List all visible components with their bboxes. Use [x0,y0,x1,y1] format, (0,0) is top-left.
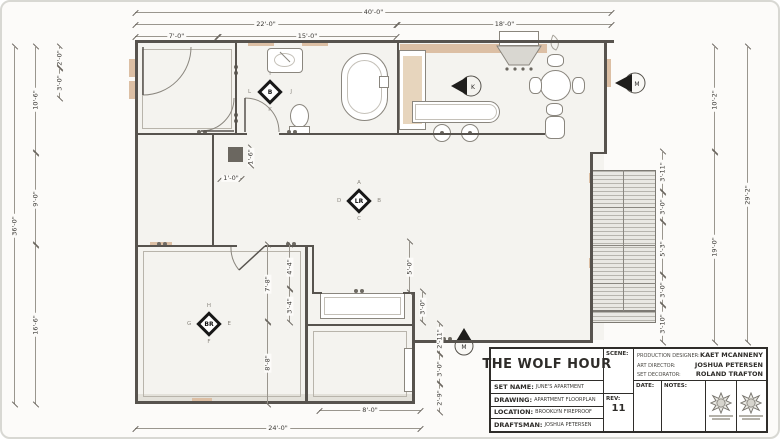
date-cell: DATE: [634,381,662,431]
dimension-label: 7'-8" [264,274,271,293]
dimension-label: 10'-2" [711,88,718,112]
wall-segment [212,133,214,247]
dimension-line: 40'-0" [135,12,612,13]
stamp-caption-line [739,415,763,417]
dimension-line: 3'-4" [289,289,290,322]
dimension-line: 8'-8" [267,322,268,404]
dimension-line: 3'-0" [662,275,663,305]
wall-segment [306,324,414,326]
dimension-label: 15'-0" [296,33,320,40]
draftsman-row: DRAFTSMAN: JOSHUA PETERSEN [491,419,603,431]
dimension-label: 18'-0" [493,21,517,28]
dimension-label: 40'-0" [362,9,386,16]
credit-row: SET DECORATOR: ROLAND TRAFTON [637,370,763,378]
drawing-row: DRAWING: APARTMENT FLOORPLAN [491,394,603,407]
dimension-line: 1'-0" [220,178,242,179]
union-star-icon [710,392,732,414]
dimension-line: 22'-0" [135,24,397,25]
wall-segment [590,152,593,343]
dimension-label: 5'-3" [659,239,666,258]
wall-segment [412,292,415,404]
set-name-value: JUNE'S APARTMENT [536,384,584,390]
dimension-label: 5'-0" [406,257,413,276]
dimension-line: 4'-4" [289,245,290,289]
dimension-label: 24'-0" [266,425,290,432]
dimension-line: 16'-6" [35,245,36,404]
wall-segment [397,40,399,135]
stamp-caption-line [709,415,733,417]
credit-label: ART DIRECTOR: [637,363,676,369]
wall-segment [135,401,415,404]
credit-value: ROLAND TRAFTON [696,370,763,378]
set-name-label: SET NAME: [494,383,534,391]
wall-segment [135,245,237,247]
credit-row: PRODUCTION DESIGNER: KAET MCANNENY [637,351,763,359]
dimension-label: 29'-2" [744,183,751,207]
dimension-line: 3'-0" [439,354,440,384]
drawing-title: THE WOLF HOUR [491,349,603,381]
credit-row: ART DIRECTOR: JOSHUA PETERSEN [637,361,763,369]
wall-segment [235,40,237,135]
drawing-label: DRAWING: [494,396,532,404]
dimension-label: 4'-4" [286,257,293,276]
dimension-line: 19'-0" [714,152,715,342]
dimension-label: 1'-6" [247,147,254,166]
wall-segment [279,133,545,135]
dimension-line: 10'-6" [35,47,36,153]
credits-block: PRODUCTION DESIGNER: KAET MCANNENY ART D… [634,349,766,381]
draftsman-value: JOSHUA PETERSEN [545,422,592,428]
dimension-line: 5'-0" [409,242,410,292]
dimension-label: 16'-6" [32,313,39,337]
dimension-line: 5'-3" [662,222,663,275]
dimension-line: 36'-0" [14,47,15,404]
wall-segment [604,40,607,154]
scene-cell: SCENE: [604,349,633,394]
wall-segment [312,292,322,294]
dimension-line: 3'-11" [662,152,663,192]
union-stamp-right [737,381,767,431]
wall-segment [312,245,314,294]
dimension-line: 2'-11" [439,324,440,354]
dimension-line: 3'-10" [662,305,663,342]
dimension-label: 36'-0" [11,214,18,238]
dimension-label: 3'-10" [659,312,666,336]
credit-label: SET DECORATOR: [637,372,681,378]
notes-cell: NOTES: [662,381,706,431]
dimension-line: 15'-0" [218,36,397,37]
scene-label: SCENE: [606,351,628,357]
credit-value: JOSHUA PETERSEN [695,361,763,369]
dimension-line: 2'-0" [59,47,60,68]
dimension-label: 3'-0" [659,280,666,299]
wall-segment [135,133,247,135]
location-label: LOCATION: [494,408,533,416]
wall-segment [135,40,614,43]
dimension-label: 3'-0" [659,197,666,216]
dimension-label: 19'-0" [711,235,718,259]
dimension-line: 29'-2" [747,47,748,342]
dimension-line: 3'-0" [422,292,423,322]
union-stamp-left [706,381,737,431]
dimension-label: 3'-0" [56,73,63,92]
dimension-label: 8'-0" [360,407,379,414]
dimension-label: 9'-0" [32,189,39,208]
union-star-icon [740,392,762,414]
credit-label: PRODUCTION DESIGNER: [637,353,700,359]
rev-cell: REV: 11 [604,394,633,431]
dimension-label: 22'-0" [254,21,278,28]
drawing-value: APARTMENT FLOORPLAN [534,397,595,403]
stamp-caption-line [742,418,760,420]
dimension-label: 10'-6" [32,88,39,112]
floorplan-sheet: K M M B I J K L LR A B C D BR H E [0,0,780,439]
dimension-label: 7'-0" [167,33,186,40]
dimension-line: 2'-9" [439,384,440,412]
dimension-line: 7'-8" [267,245,268,322]
dimension-line: 8'-0" [319,410,421,411]
dimension-label: 3'-0" [419,297,426,316]
wall-segment [135,40,138,404]
title-block: THE WOLF HOUR SET NAME: JUNE'S APARTMENT… [489,347,768,433]
stamp-caption-line [712,418,730,420]
location-row: LOCATION: BROOKLYN FIREPROOF [491,407,603,420]
set-name-row: SET NAME: JUNE'S APARTMENT [491,381,603,394]
dimension-line: 1'-6" [250,148,251,165]
dimension-label: 3'-0" [436,359,443,378]
dimension-label: 1'-0" [221,175,240,182]
dimension-line: 3'-0" [59,68,60,98]
location-value: BROOKLYN FIREPROOF [535,409,592,415]
rev-value: 11 [606,403,631,414]
dimension-label: 2'-9" [436,388,443,407]
dimension-line: 24'-0" [135,428,421,429]
dimension-label: 8'-8" [264,353,271,372]
credit-value: KAET MCANNENY [700,351,763,359]
rev-label: REV: [606,396,631,402]
draftsman-label: DRAFTSMAN: [494,421,543,429]
dimension-line: 18'-0" [397,24,612,25]
dimension-line: 3'-0" [662,192,663,222]
dimension-label: 3'-4" [286,296,293,315]
dimension-line: 10'-2" [714,47,715,152]
dimension-label: 3'-11" [659,160,666,184]
dimension-line: 7'-0" [135,36,218,37]
dimension-label: 2'-11" [436,327,443,351]
dimension-line: 9'-0" [35,153,36,245]
